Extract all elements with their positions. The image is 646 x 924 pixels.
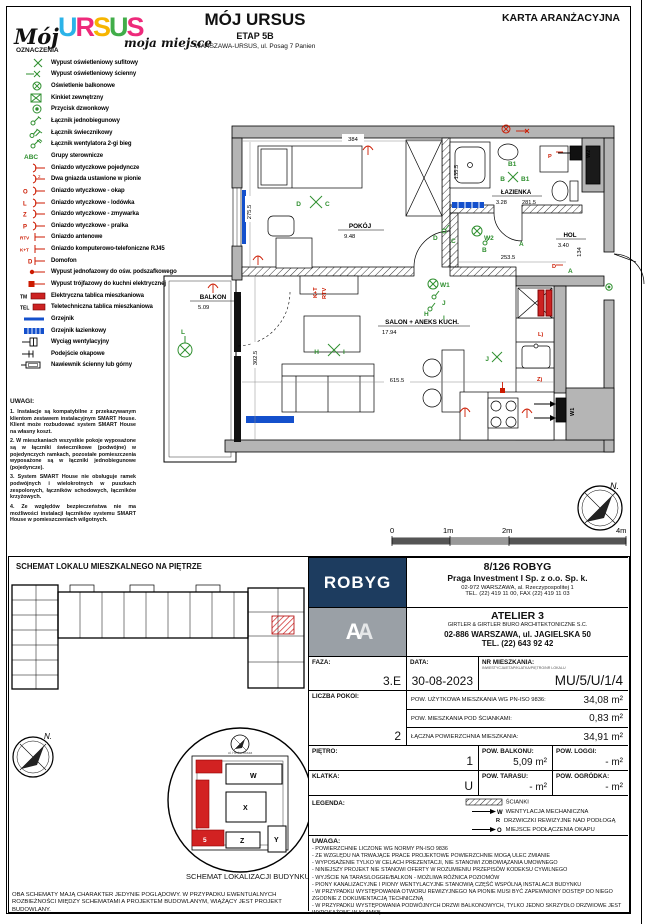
radiator-salon	[246, 416, 294, 423]
bed-pillow	[261, 149, 287, 185]
legend-item: Wypust jednofazowy do ośw. podszafkowego	[10, 267, 162, 279]
data-socket-icon: K+T	[10, 244, 51, 254]
area-row: POW. UŻYTKOWA MIESZKANIA WG PN-ISO 9836:…	[407, 691, 628, 709]
svg-text:B1: B1	[508, 161, 517, 168]
svg-text:L: L	[181, 329, 185, 336]
radiator-icon	[10, 314, 51, 324]
svg-text:3.40: 3.40	[558, 243, 569, 249]
title-block: MÓJ URSUS ETAP 5B WARSZAWA-URSUS, ul. Po…	[150, 10, 360, 50]
legend-item: Grzejnik łazienkowy	[10, 325, 162, 337]
balcony-light-icon	[10, 81, 51, 91]
svg-text:O: O	[497, 828, 502, 833]
two-gang-switch-icon	[10, 128, 51, 138]
floor-plan: W2 W1	[164, 126, 644, 462]
svg-text:2m: 2m	[502, 526, 512, 535]
svg-text:9.48: 9.48	[344, 234, 355, 240]
svg-text:H: H	[314, 349, 319, 356]
wall-light-icon	[10, 69, 51, 79]
fan-switch-icon	[10, 139, 51, 149]
legend-item: LGniazdo wtyczkowe - lodówka	[10, 197, 162, 209]
legend-item: Oświetlenie balkonowe	[10, 80, 162, 92]
vent-arrow-icon: W	[464, 808, 504, 815]
uwagi-note-1: 1. Instalacje są kompatybilne z przekazy…	[10, 409, 136, 435]
areas-cell: POW. UŻYTKOWA MIESZKANIA WG PN-ISO 9836:…	[406, 690, 628, 745]
svg-text:D: D	[433, 235, 438, 242]
svg-text:W2: W2	[484, 235, 494, 242]
pow-tarasu-cell: POW. TARASU: - m²	[478, 770, 552, 795]
hood-connection-icon	[10, 349, 51, 359]
chair	[423, 359, 441, 377]
legend-item: Wypust oświetleniowy ścienny	[10, 69, 162, 81]
hood-socket-icon: O	[10, 186, 51, 196]
pow-ogrodka-cell: POW. OGRÓDKA: - m²	[552, 770, 628, 795]
legend-item: Łącznik wentylatora 2-gi bieg	[10, 138, 162, 150]
sink	[522, 346, 550, 368]
legend-item: 2Dwa gniazda ustawione w pionie	[10, 173, 162, 185]
furniture-pokoj	[258, 140, 442, 268]
svg-text:Z: Z	[23, 213, 27, 219]
svg-text:253.5: 253.5	[501, 255, 516, 261]
svg-text:L: L	[23, 201, 27, 207]
svg-text:K+T: K+T	[20, 248, 29, 253]
svg-text:ABC: ABC	[24, 154, 38, 161]
vent-w1	[556, 398, 566, 422]
pokoj-window	[233, 188, 246, 246]
legend-item: RTVGniazdo antenowe	[10, 232, 162, 244]
legend-item: Wyciąg wentylacyjny	[10, 336, 162, 348]
svg-text:POKÓJ: POKÓJ	[349, 221, 372, 230]
furniture-salon	[282, 276, 464, 412]
bathroom-radiator-icon	[10, 326, 51, 336]
legend-item: ZGniazdo wtyczkowe - zmywarka	[10, 208, 162, 220]
uwagi-title: UWAGI:	[10, 398, 136, 405]
data-cell: DATA: 30-08-2023	[406, 656, 478, 690]
uwagi-notes: UWAGI: 1. Instalacje są kompatybilne z p…	[10, 398, 136, 527]
svg-text:B: B	[482, 247, 487, 254]
schematics-disclaimer: OBA SCHEMATY MAJĄ CHARAKTER JEDYNIE POGL…	[12, 892, 304, 914]
legend-item: OGniazdo wtyczkowe - okap	[10, 185, 162, 197]
control-groups-icon: ABC	[10, 151, 51, 161]
svg-text:W: W	[497, 810, 503, 815]
svg-text:D: D	[552, 264, 556, 270]
pietro-cell: PIĘTRO: 1	[308, 745, 478, 770]
svg-text:3.28: 3.28	[496, 200, 507, 206]
legend-item: Przycisk dzwonkowy	[10, 104, 162, 116]
svg-text:2: 2	[38, 174, 41, 179]
robyg-logo: ROBYG	[308, 557, 406, 607]
svg-text:O: O	[23, 189, 28, 195]
faza-cell: FAZA: 3.E	[308, 656, 406, 690]
legend-item: Wypust trójfazowy do kuchni elektrycznej	[10, 278, 162, 290]
antenna-socket-icon: RTV	[10, 232, 51, 242]
svg-text:384: 384	[348, 137, 358, 143]
svg-text:Z): Z)	[537, 377, 542, 383]
svg-text:RTV: RTV	[20, 236, 30, 241]
svg-text:A: A	[568, 268, 573, 275]
washbasin	[498, 144, 518, 160]
project-address: WARSZAWA-URSUS, ul. Posag 7 Panien	[150, 43, 360, 50]
card-title: KARTA ARANŻACYJNA	[470, 12, 620, 24]
vent-w1-label: W1	[570, 408, 576, 416]
svg-text:D: D	[296, 201, 301, 208]
atelier-logo: AA	[308, 607, 406, 656]
svg-text:134: 134	[577, 246, 583, 256]
svg-text:W1: W1	[440, 282, 450, 289]
toilet	[552, 181, 568, 201]
legend-item: TMElektryczna tablica mieszkaniowa	[10, 290, 162, 302]
svg-text:5.09: 5.09	[198, 305, 209, 311]
single-phase-outlet-icon	[10, 267, 51, 277]
svg-text:L): L)	[538, 332, 543, 338]
legend-item: Wypust oświetleniowy sufitowy	[10, 57, 162, 69]
svg-text:HOL: HOL	[563, 232, 576, 239]
pow-balkonu-cell: POW. BALKONU: 5,09 m²	[478, 745, 552, 770]
legend-item: K+TGniazdo komputerowo-telefoniczne RJ45	[10, 243, 162, 255]
hood-arrow-icon: O	[464, 826, 504, 833]
svg-text:BALKON: BALKON	[200, 294, 227, 301]
electrical-panel-icon: TM	[10, 291, 51, 301]
legend-item: DDomofon	[10, 255, 162, 267]
table	[304, 316, 360, 352]
legend-item: Podejście okapowe	[10, 348, 162, 360]
legend-item: Kinkiet zewnętrzny	[10, 92, 162, 104]
legend-item: Nawiewnik ścienny lub górny	[10, 360, 162, 372]
svg-text:A: A	[519, 241, 524, 248]
single-switch-icon	[10, 116, 51, 126]
svg-text:281.5: 281.5	[522, 200, 536, 206]
svg-text:135.5: 135.5	[454, 165, 460, 180]
doorbell-button-icon	[10, 104, 51, 114]
svg-text:B: B	[500, 176, 505, 183]
uwaga2-cell: UWAGA: - POWIERZCHNIE LICZONE WG NORMY P…	[308, 835, 628, 911]
vent-w2	[570, 146, 582, 160]
location-schematic-title: SCHEMAT LOKALIZACJI BUDYNKU	[186, 872, 310, 881]
svg-text:C: C	[325, 201, 330, 208]
area-row: ŁĄCZNA POWIERZCHNIA MIESZKANIA:34,91 m²	[407, 727, 628, 746]
project-stage: ETAP 5B	[150, 31, 360, 41]
uwagi-note-3: 3. System SMART House nie obsługuje rame…	[10, 474, 136, 500]
legend-item: PGniazdo wtyczkowe - pralka	[10, 220, 162, 232]
svg-text:TEL: TEL	[20, 306, 29, 312]
project-title: MÓJ URSUS	[150, 10, 360, 30]
svg-text:D: D	[28, 259, 33, 265]
uwagi-note-2: 2. W mieszkaniach wszystkie pokoje wypos…	[10, 438, 136, 471]
svg-text:TM: TM	[20, 294, 27, 300]
svg-text:I: I	[443, 315, 445, 322]
svg-text:J: J	[442, 300, 446, 307]
legend-item: TELTeletechniczna tablica mieszkaniowa	[10, 301, 162, 313]
fridge-socket-icon: L	[10, 198, 51, 208]
legenda2-cell: LEGENDA: ŚCIANKI W WENTYLACJA MECHANICZN…	[308, 795, 628, 835]
svg-text:1m: 1m	[443, 526, 453, 535]
svg-text:ŁAZIENKA: ŁAZIENKA	[501, 190, 532, 196]
tv-cabinet	[300, 276, 358, 294]
klatka-cell: KLATKA: U	[308, 770, 478, 795]
floor-schematic-title: SCHEMAT LOKALU MIESZKALNEGO NA PIĘTRZE	[16, 562, 202, 571]
svg-text:SALON + ANEKS KUCH.: SALON + ANEKS KUCH.	[385, 319, 459, 326]
armchair	[268, 216, 294, 236]
socket-icon	[10, 163, 51, 173]
balcony-outline	[164, 276, 236, 462]
air-inlet-icon	[10, 360, 51, 370]
dishwasher-socket-icon: Z	[10, 209, 51, 219]
svg-text:275.5: 275.5	[247, 205, 253, 220]
scale-bar: 0 1m 2m 4m	[390, 526, 626, 546]
svg-text:0: 0	[390, 526, 394, 535]
vent-extract-icon	[10, 337, 51, 347]
washing-machine	[540, 146, 568, 172]
intercom-icon: D	[10, 256, 51, 266]
legend-item: ABCGrupy sterownicze	[10, 150, 162, 162]
svg-text:C: C	[451, 238, 456, 245]
developer-info: 8/126 ROBYG Praga Investment I Sp. z o.o…	[406, 557, 628, 607]
three-phase-outlet-icon	[10, 279, 51, 289]
area-row: POW. MIESZKANIA POD ŚCIANKAMI:0,83 m²	[407, 709, 628, 727]
svg-text:J: J	[485, 356, 489, 363]
outdoor-sconce-icon	[10, 93, 51, 103]
balcony-door-swing	[236, 292, 290, 346]
svg-text:K+T: K+T	[313, 287, 319, 298]
desk	[276, 238, 312, 268]
svg-text:4m: 4m	[616, 526, 626, 535]
balcony-door	[234, 292, 241, 442]
legend-item: Łącznik jednobiegunowy	[10, 115, 162, 127]
svg-text:615.5: 615.5	[390, 378, 405, 384]
svg-text:P: P	[548, 154, 552, 160]
logo-script: Mój	[14, 24, 59, 49]
washer-socket-icon: P	[10, 221, 51, 231]
symbols-legend: Wypust oświetleniowy sufitowy Wypust ośw…	[10, 57, 162, 371]
ceiling-light-icon	[10, 58, 51, 68]
karta-aranzacyjna-page: W2 W1 384 275.5 135.5 253.5 134 615.5 30…	[0, 0, 646, 924]
uwagi-note-4: 4. Ze względów bezpieczeństwa nie ma moż…	[10, 504, 136, 524]
legend-item: Grzejnik	[10, 313, 162, 325]
teletech-panel-icon: TEL	[10, 302, 51, 312]
liczba-pokoi-cell: LICZBA POKOI: 2	[308, 690, 406, 745]
double-socket-icon: 2	[10, 174, 51, 184]
svg-text:I: I	[343, 349, 345, 356]
uwaga2-notes: - POWIERZCHNIE LICZONE WG NORMY PN-ISO 9…	[309, 846, 628, 917]
svg-text:N.: N.	[610, 481, 619, 491]
svg-text:302.5: 302.5	[253, 351, 259, 366]
svg-text:P: P	[23, 224, 27, 230]
svg-text:17.94: 17.94	[382, 330, 397, 336]
legend-item: Łącznik świecznikowy	[10, 127, 162, 139]
oznaczenia-label: OZNACZENIA	[16, 47, 59, 54]
entry-door-swing	[614, 254, 644, 284]
north-compass: N.	[578, 481, 622, 530]
legend-item: Gniazdo wtyczkowe pojedyncze	[10, 162, 162, 174]
nr-mieszkania-cell: NR MIESZKANIA: INWESTYCJA/ETAP/KLATKA/PI…	[478, 656, 628, 690]
svg-text:H: H	[424, 311, 429, 318]
architect-info: ATELIER 3 GIRTLER & GIRTLER BIURO ARCHIT…	[406, 607, 628, 656]
svg-text:RTV: RTV	[322, 288, 328, 299]
pow-loggi-cell: POW. LOGGI: - m²	[552, 745, 628, 770]
vent-w2-label: W2	[586, 150, 592, 158]
svg-text:B1: B1	[521, 176, 530, 183]
chair	[423, 389, 441, 407]
